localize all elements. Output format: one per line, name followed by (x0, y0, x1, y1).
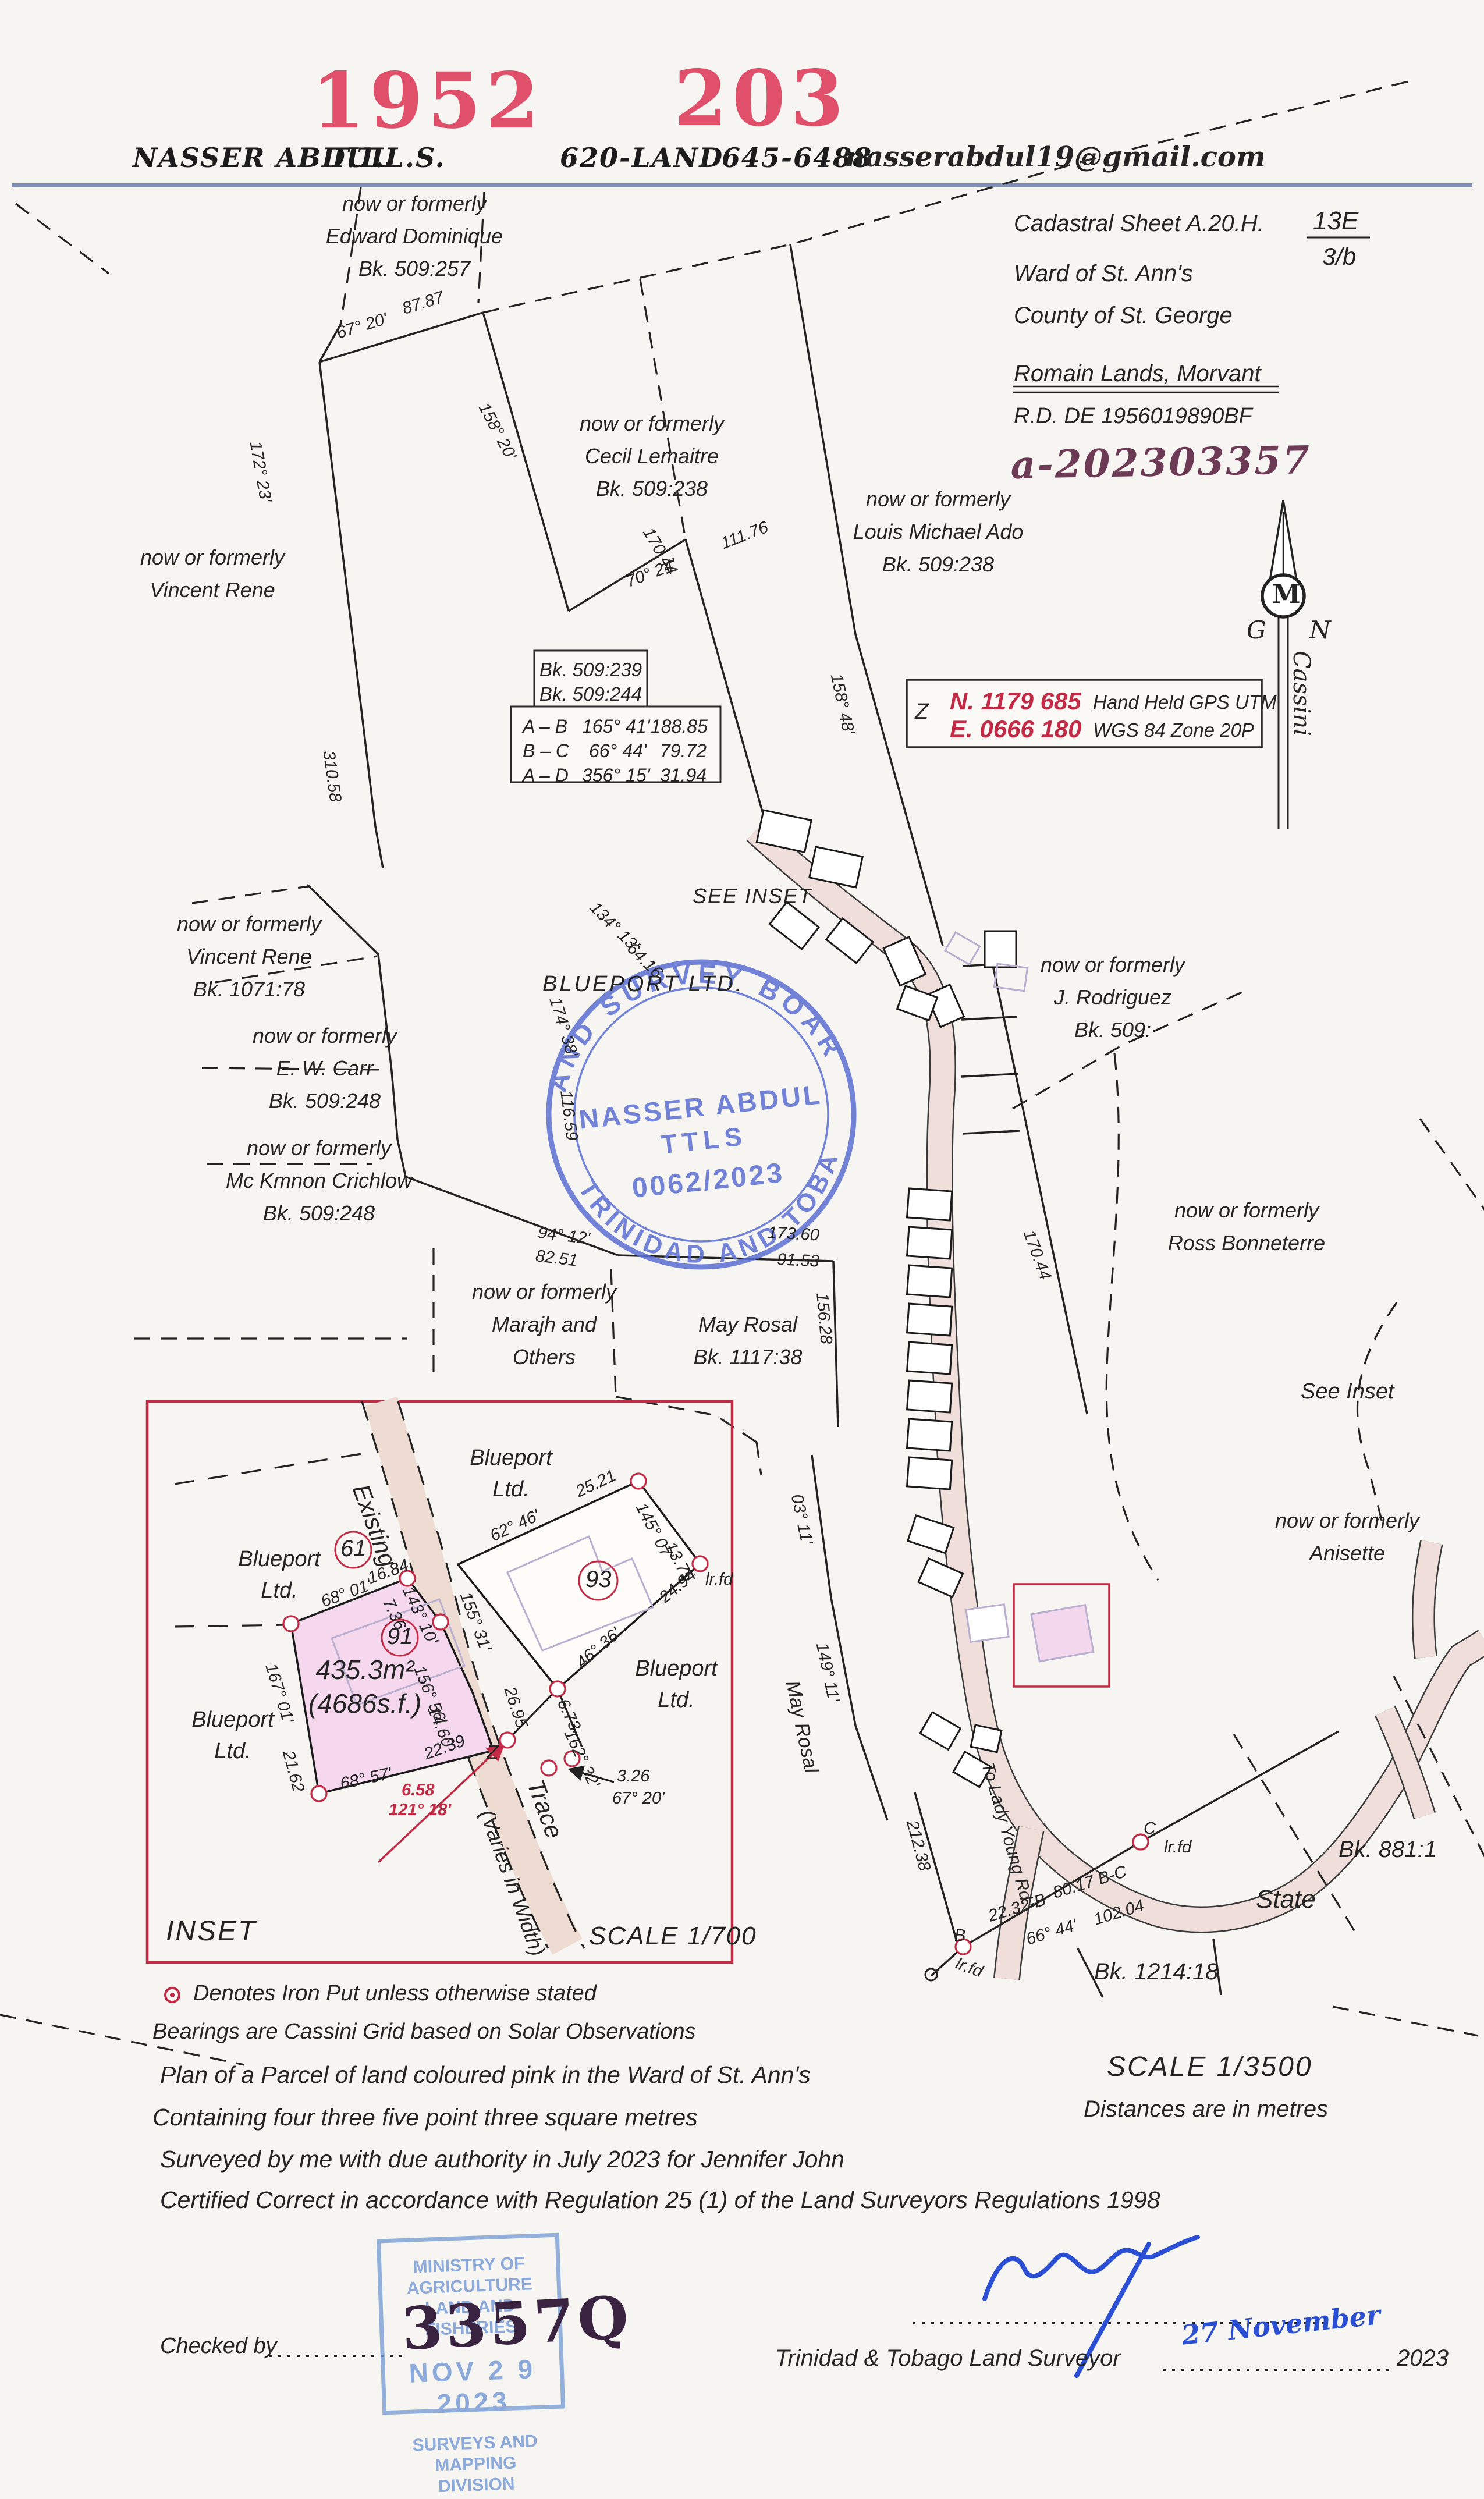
dashed-boundaries (0, 81, 1484, 2065)
adjoiner-line: Bk. 509:238 (853, 548, 1024, 581)
bk-1214-label: Bk. 1214:18 (1094, 1960, 1219, 1983)
surveyor-title: T.T.L.S. (329, 144, 446, 171)
phone-label: 620-LAND (560, 144, 723, 171)
area-imperial: (4686s.f.) (308, 1687, 421, 1720)
owner-line: Ltd. (238, 1575, 321, 1606)
blueport-inset-2: Blueport Ltd. (191, 1704, 274, 1767)
adjoiner-line: Marajh and (472, 1308, 616, 1341)
building (907, 1419, 952, 1451)
legend-note: Denotes Iron Put unless otherwise stated (193, 1982, 597, 2004)
bearing-leg: B – C (523, 741, 569, 760)
bearing-distance: 188.85 (651, 717, 708, 736)
adjoiner-ross-bonneterre: now or formerly Ross Bonneterre (1168, 1194, 1325, 1259)
iron-found-label: lr.fd (1164, 1839, 1191, 1856)
adjoiner-line: Anisette (1275, 1537, 1419, 1570)
adjoiner-line: E. W. Carr (253, 1052, 397, 1085)
handwritten-plan-ref: a-202303357 (1010, 441, 1312, 484)
adjoiner-line: now or formerly (226, 1132, 412, 1165)
point-b-label: B (954, 1928, 965, 1944)
iron-pin-legend-icon (165, 1988, 179, 2002)
adjoiner-line: Vincent Rene (140, 574, 285, 606)
survey-plan-page: { "colors": { "red_accent": "#e0506b", "… (0, 0, 1484, 2444)
blueport-ltd-label: BLUEPORT LTD. (542, 973, 744, 995)
checked-by-label: Checked by (160, 2335, 277, 2357)
gps-northing: N. 1179 685 (950, 689, 1081, 714)
book-ref-1: Bk. 509:239 (539, 658, 642, 682)
owner-line: Blueport (470, 1442, 552, 1474)
adjoiner-line: now or formerly (1275, 1504, 1419, 1537)
bearings-note: Bearings are Cassini Grid based on Solar… (152, 2021, 696, 2043)
dim-distance: 3.26 (617, 1768, 649, 1785)
inset-title: INSET (166, 1918, 257, 1946)
subject-building (1031, 1605, 1094, 1662)
adjoiner-line: Bk. 509:248 (253, 1085, 397, 1117)
building (985, 931, 1016, 967)
lot-93-number: 93 (585, 1568, 612, 1591)
locality-label: Romain Lands, Morvant (1014, 362, 1261, 385)
see-inset-label: See Inset (1301, 1380, 1394, 1403)
bearing-leg: A – B (523, 717, 567, 736)
bearing-angle: 356° 15' (582, 766, 650, 785)
area-metric: 435.3m² (308, 1653, 421, 1687)
county-label: County of St. George (1014, 304, 1233, 327)
building (945, 932, 980, 964)
plan-description: Plan of a Parcel of land coloured pink i… (160, 2063, 811, 2087)
adjoiner-rodriguez: now or formerly J. Rodriguez Bk. 509: (1041, 949, 1185, 1046)
adjoiner-line: Vincent Rene (177, 940, 321, 973)
gps-point-z: Z (915, 701, 928, 723)
adjoiner-line: Bk. 509:248 (226, 1197, 412, 1230)
containing-note: Containing four three five point three s… (152, 2106, 698, 2129)
ministry-line3: SURVEYS AND MAPPING (388, 2430, 563, 2478)
adjoiner-line: Others (472, 1341, 616, 1373)
adjoiner-marajh: now or formerly Marajh and Others (472, 1276, 616, 1373)
gps-datum: WGS 84 Zone 20P (1093, 720, 1254, 740)
parcel-area: 435.3m² (4686s.f.) (308, 1653, 421, 1720)
adjoiner-line: now or formerly (253, 1020, 397, 1052)
owner-line: Blueport (635, 1653, 718, 1684)
adjoiner-ew-carr: now or formerly E. W. Carr Bk. 509:248 (253, 1020, 397, 1117)
cassini-grid-label: Cassini (1290, 651, 1313, 736)
point-z-label: Z (487, 1742, 499, 1762)
building (907, 1380, 952, 1412)
adjoiner-line: Bk. 1071:78 (177, 973, 321, 1006)
see-inset-caps-label: SEE INSET (693, 886, 812, 907)
adjoiner-line: now or formerly (1168, 1194, 1325, 1227)
dim-bearing: 67° 20' (612, 1790, 665, 1807)
stamp-title: TTLS (659, 1121, 748, 1159)
dim-distance: 156.28 (813, 1292, 835, 1345)
sheet-sub: 3/b (1322, 244, 1356, 269)
adjoiner-line: Bk. 509:257 (326, 253, 503, 285)
dim-red-distance: 6.58 (402, 1782, 434, 1799)
blueport-inset-3: Blueport Ltd. (470, 1442, 552, 1505)
adjoiner-line: now or formerly (580, 407, 724, 440)
building (907, 1304, 952, 1336)
adjoiner-line: J. Rodriguez (1041, 981, 1185, 1014)
adjoiner-line: Edward Dominique (326, 220, 503, 253)
adjoiner-louis-ado: now or formerly Louis Michael Ado Bk. 50… (853, 483, 1024, 581)
dim-distance: 173.60 (767, 1224, 819, 1244)
owner-line: Blueport (238, 1543, 321, 1575)
bearing-angle: 165° 41' (582, 717, 650, 736)
north-grid-left: G (1247, 618, 1266, 643)
adjoiner-may-rosal: May Rosal Bk. 1117:38 (694, 1308, 803, 1373)
adjoiner-cecil-lemaitre: now or formerly Cecil Lemaitre Bk. 509:2… (580, 407, 724, 505)
adjoiner-line: Bk. 1117:38 (694, 1341, 803, 1373)
ward-label: Ward of St. Ann's (1014, 262, 1193, 285)
bearing-distance: 79.72 (660, 741, 707, 760)
plan-ref-left: 1952 (311, 63, 544, 140)
bearing-distance: 31.94 (660, 766, 707, 785)
owner-line: Ltd. (470, 1474, 552, 1505)
bearing-angle: 66° 44' (589, 741, 647, 760)
owner-line: Ltd. (635, 1684, 718, 1716)
north-true-right: N (1309, 618, 1331, 643)
building (920, 1712, 960, 1749)
building (769, 902, 819, 949)
adjoiner-line: now or formerly (177, 908, 321, 940)
adjoiner-anisette: now or formerly Anisette (1275, 1504, 1419, 1570)
adjoiner-line: Ross Bonneterre (1168, 1227, 1325, 1259)
building (971, 1725, 1002, 1752)
dim-distance: 91.53 (776, 1251, 819, 1270)
bk-881-label: Bk. 881:1 (1339, 1838, 1437, 1861)
plan-ref-right: 203 (674, 61, 848, 137)
adjoiner-line: now or formerly (326, 187, 503, 220)
ministry-handwritten-number: 3357Q (400, 2288, 633, 2358)
adjoiner-edward-dominique: now or formerly Edward Dominique Bk. 509… (326, 187, 503, 285)
book-references: Bk. 509:239 Bk. 509:244 (539, 658, 642, 707)
adjoiner-line: Mc Kmnon Crichlow (226, 1165, 412, 1197)
deed-reference: R.D. DE 1956019890BF (1014, 405, 1252, 427)
adjoiner-line: now or formerly (1041, 949, 1185, 981)
sheet-number: 13E (1313, 208, 1358, 234)
blueport-inset-4: Blueport Ltd. (635, 1653, 718, 1716)
main-scale: SCALE 1/3500 (1107, 2053, 1313, 2081)
north-monogram: M (1272, 582, 1301, 608)
owner-line: Ltd. (191, 1735, 274, 1767)
dim-red-bearing: 121° 18' (389, 1802, 451, 1819)
point-c-label: C (1144, 1820, 1156, 1837)
adjoiner-vincent-rene-top: now or formerly Vincent Rene (140, 541, 285, 606)
adjoiner-line: now or formerly (853, 483, 1024, 516)
surveyor-signature-line-label: Trinidad & Tobago Land Surveyor (775, 2347, 1121, 2370)
building (907, 1227, 952, 1259)
adjoiner-line: Cecil Lemaitre (580, 440, 724, 473)
adjoiner-line: May Rosal (694, 1308, 803, 1341)
iron-found-label: lr.fd (705, 1571, 733, 1588)
adjoiner-vincent-rene: now or formerly Vincent Rene Bk. 1071:78 (177, 908, 321, 1006)
building (907, 1265, 952, 1297)
bearing-leg: A – D (523, 766, 569, 785)
adjoiner-line: now or formerly (140, 541, 285, 574)
stamp-number: 0062/2023 (630, 1158, 786, 1204)
surveyed-note: Surveyed by me with due authority in Jul… (160, 2147, 844, 2171)
building (907, 1188, 952, 1220)
certified-note: Certified Correct in accordance with Reg… (160, 2188, 1160, 2212)
owner-line: Blueport (191, 1704, 274, 1735)
adjoiner-line: Bk. 509: (1041, 1014, 1185, 1046)
inset-drawing (175, 1401, 708, 1948)
road-spur (1423, 1542, 1432, 1657)
building (907, 1342, 952, 1374)
adjoiner-line: now or formerly (472, 1276, 616, 1308)
cadastral-sheet-label: Cadastral Sheet A.20.H. (1014, 212, 1264, 235)
building (966, 1605, 1009, 1642)
gps-easting: E. 0666 180 (950, 717, 1082, 741)
inset-scale: SCALE 1/700 (589, 1923, 757, 1949)
adjoiner-line: Louis Michael Ado (853, 516, 1024, 548)
adjoiner-line: Bk. 509:238 (580, 473, 724, 505)
gps-method: Hand Held GPS UTM (1093, 693, 1276, 712)
email-address: nasserabdul19@gmail.com (845, 143, 1266, 171)
state-label: State (1256, 1887, 1316, 1912)
book-ref-2: Bk. 509:244 (539, 682, 642, 707)
distances-note: Distances are in metres (1084, 2097, 1328, 2121)
signature-year: 2023 (1397, 2347, 1449, 2370)
blueport-inset-1: Blueport Ltd. (238, 1543, 321, 1606)
adjoiner-crichlow: now or formerly Mc Kmnon Crichlow Bk. 50… (226, 1132, 412, 1230)
building (907, 1457, 952, 1489)
